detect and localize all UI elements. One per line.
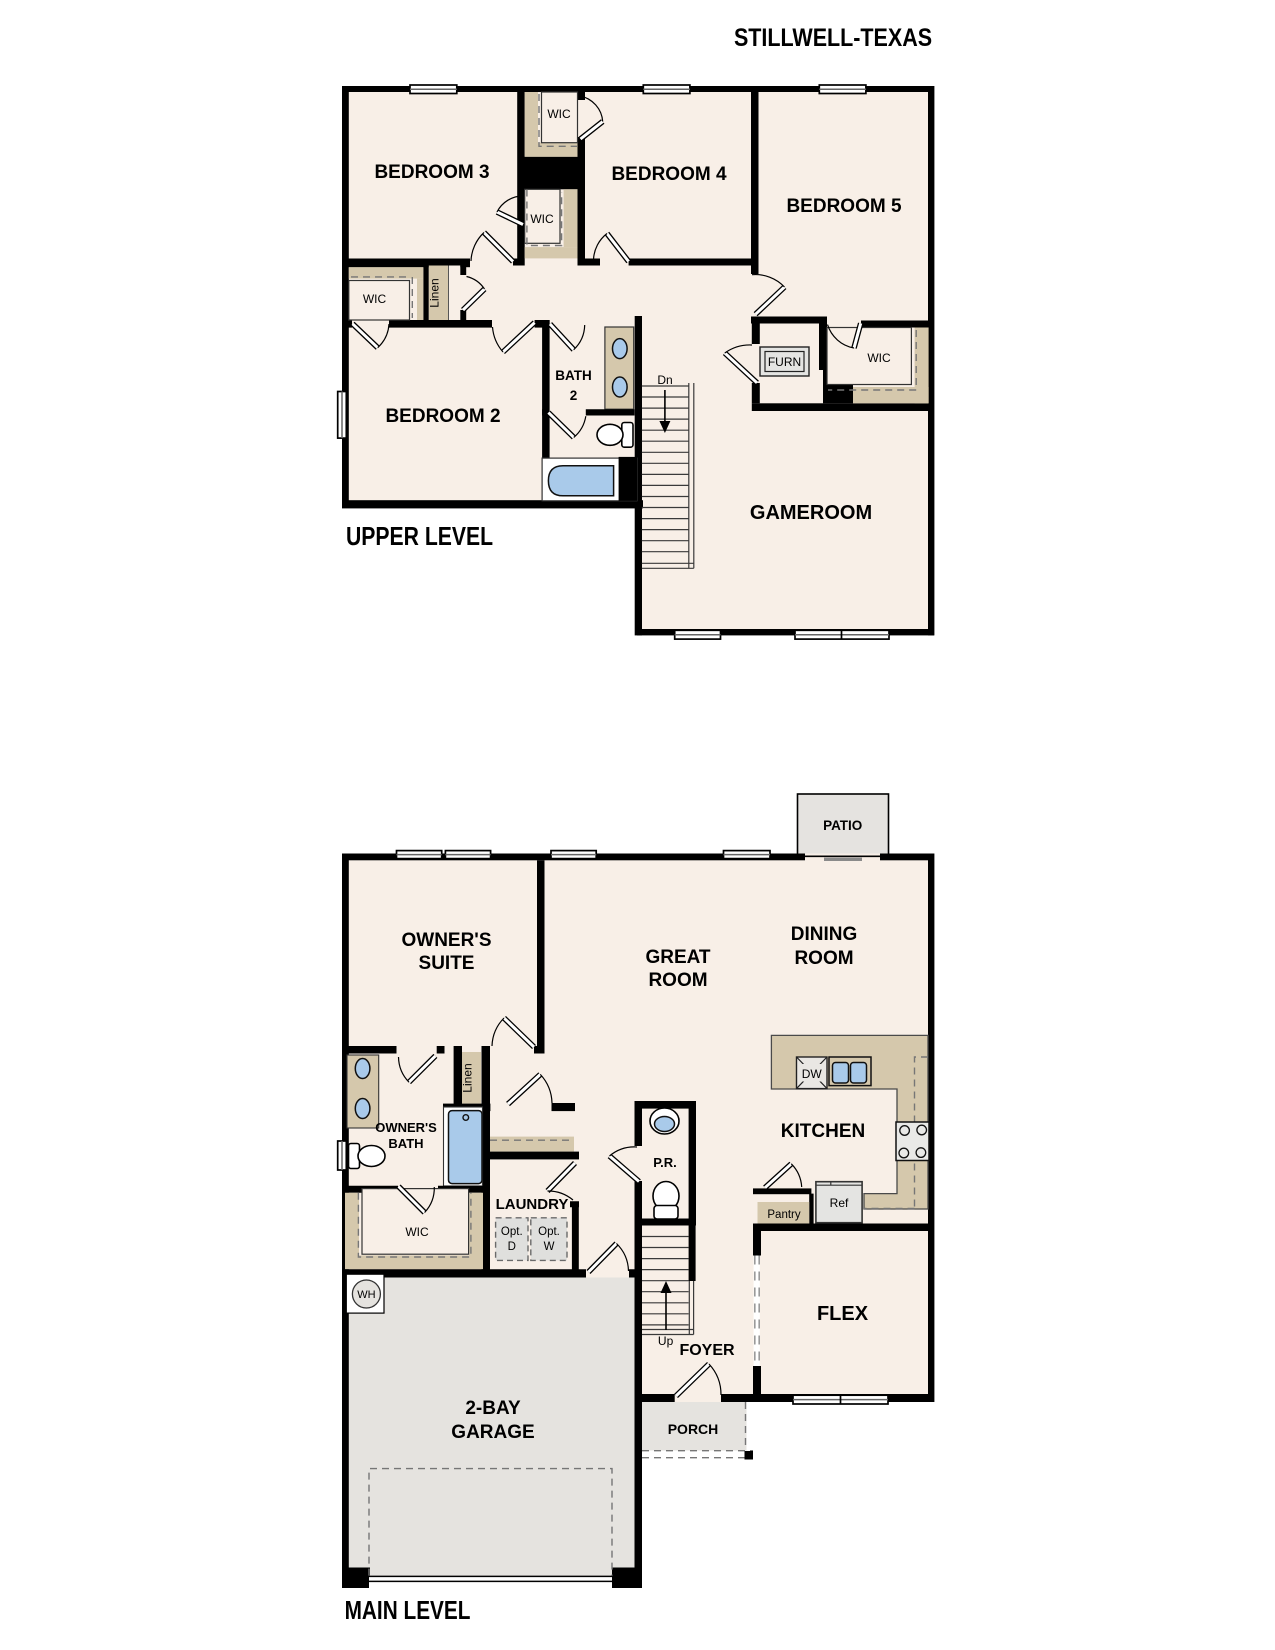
- svg-text:GAMEROOM: GAMEROOM: [750, 502, 872, 524]
- svg-text:D: D: [508, 1241, 516, 1253]
- svg-text:WIC: WIC: [867, 351, 891, 365]
- svg-text:WIC: WIC: [547, 107, 571, 121]
- svg-text:2-BAY: 2-BAY: [465, 1398, 521, 1419]
- svg-text:2: 2: [570, 388, 578, 403]
- svg-text:Opt.: Opt.: [538, 1226, 560, 1238]
- svg-text:FOYER: FOYER: [679, 1342, 735, 1359]
- svg-text:WIC: WIC: [405, 1225, 429, 1239]
- svg-text:PATIO: PATIO: [823, 818, 862, 833]
- svg-text:MAIN LEVEL: MAIN LEVEL: [345, 1596, 471, 1625]
- svg-text:LAUNDRY: LAUNDRY: [496, 1196, 569, 1213]
- svg-text:KITCHEN: KITCHEN: [781, 1121, 865, 1142]
- svg-text:Ref: Ref: [830, 1196, 849, 1210]
- svg-text:UPPER LEVEL: UPPER LEVEL: [346, 523, 493, 552]
- svg-text:BEDROOM 4: BEDROOM 4: [611, 164, 727, 185]
- svg-text:SUITE: SUITE: [419, 953, 475, 974]
- svg-text:BEDROOM 2: BEDROOM 2: [385, 406, 500, 427]
- svg-text:BATH: BATH: [388, 1136, 423, 1151]
- svg-text:DINING: DINING: [791, 924, 858, 945]
- svg-text:OWNER'S: OWNER'S: [401, 930, 491, 951]
- svg-text:FURN: FURN: [768, 355, 801, 369]
- svg-text:BEDROOM 5: BEDROOM 5: [786, 196, 902, 217]
- svg-text:PORCH: PORCH: [668, 1421, 719, 1437]
- svg-text:Up: Up: [658, 1334, 674, 1348]
- svg-text:Linen: Linen: [461, 1063, 475, 1092]
- svg-text:W: W: [544, 1241, 555, 1253]
- svg-text:WIC: WIC: [363, 292, 387, 306]
- svg-text:WIC: WIC: [530, 212, 554, 226]
- svg-text:ROOM: ROOM: [648, 970, 707, 991]
- svg-text:Pantry: Pantry: [767, 1209, 800, 1221]
- svg-text:FLEX: FLEX: [817, 1303, 869, 1325]
- svg-text:Opt.: Opt.: [501, 1226, 523, 1238]
- svg-text:ROOM: ROOM: [794, 948, 853, 969]
- svg-text:Dn: Dn: [657, 373, 672, 387]
- svg-text:Linen: Linen: [428, 278, 442, 307]
- svg-text:WH: WH: [357, 1289, 375, 1301]
- svg-text:BEDROOM 3: BEDROOM 3: [374, 162, 489, 183]
- svg-text:OWNER'S: OWNER'S: [375, 1120, 437, 1135]
- svg-text:GARAGE: GARAGE: [451, 1422, 534, 1443]
- svg-text:STILLWELL-TEXAS: STILLWELL-TEXAS: [734, 23, 932, 51]
- svg-text:DW: DW: [802, 1067, 823, 1081]
- svg-text:BATH: BATH: [555, 368, 592, 383]
- svg-text:P.R.: P.R.: [653, 1155, 677, 1170]
- svg-text:GREAT: GREAT: [645, 947, 710, 968]
